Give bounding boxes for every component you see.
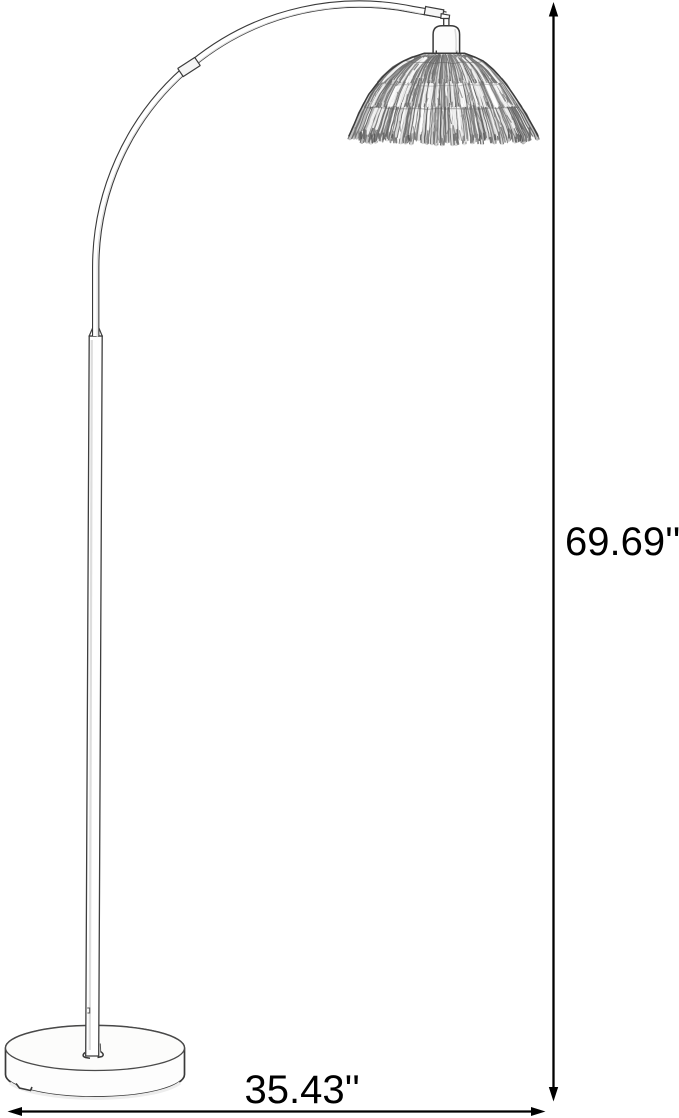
svg-text:35.43'': 35.43'' [245,1068,360,1112]
svg-text:69.69'': 69.69'' [565,520,679,564]
